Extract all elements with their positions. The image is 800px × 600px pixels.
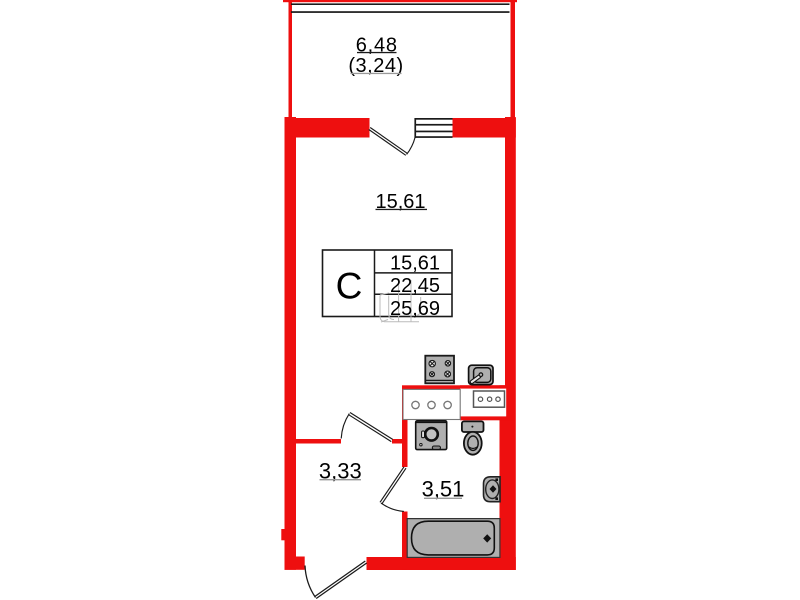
svg-text:25,69: 25,69 [390,298,440,320]
svg-text:С: С [336,266,363,307]
svg-text:22,45: 22,45 [390,275,440,297]
svg-text:15,61: 15,61 [390,253,440,275]
